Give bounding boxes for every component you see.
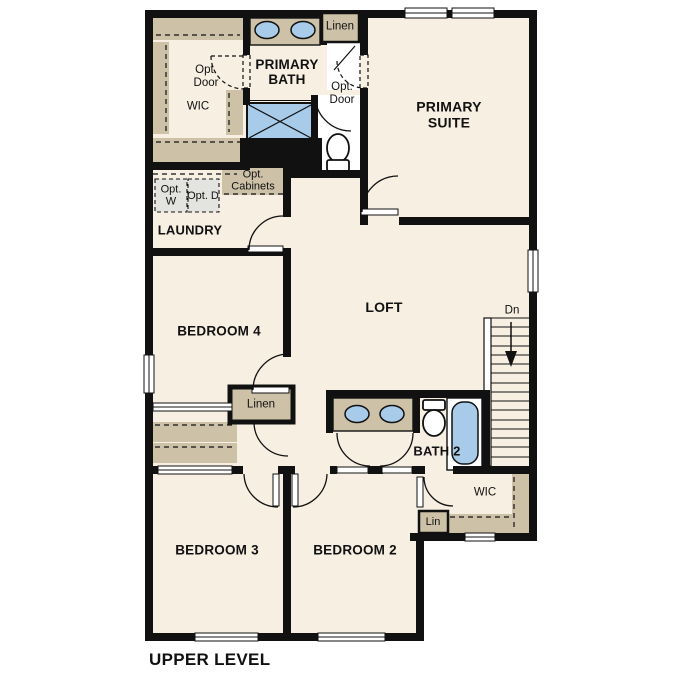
label-wic-lower: WIC xyxy=(474,487,496,500)
sink-icon xyxy=(255,22,279,39)
door-leaf xyxy=(337,467,368,473)
door-leaf xyxy=(417,477,423,507)
room-label-bedroom2: BEDROOM 2 xyxy=(285,542,425,557)
toilet-tank xyxy=(423,400,445,410)
toilet-tank xyxy=(327,160,349,171)
label-opt-cabinets: Opt. Cabinets xyxy=(220,169,286,194)
plan-title: UPPER LEVEL xyxy=(149,650,270,670)
room-label-laundry: LAUNDRY xyxy=(135,224,245,239)
door-leaf xyxy=(252,387,289,393)
wic-top-shelf xyxy=(153,18,243,40)
room-label-bedroom3: BEDROOM 3 xyxy=(147,542,287,557)
label-opt-door-left: Opt. Door xyxy=(183,64,229,90)
sink-icon xyxy=(291,22,315,39)
label-opt-dryer: Opt. D xyxy=(186,190,220,202)
toilet-icon xyxy=(423,410,445,436)
label-stairs-down: Dn xyxy=(505,305,520,318)
sink-icon xyxy=(380,406,404,423)
room-label-loft: LOFT xyxy=(344,300,424,316)
room-label-bath2: BATH 2 xyxy=(411,445,463,460)
label-linen-lower: Lin xyxy=(426,516,441,528)
label-wic-upper: WIC xyxy=(187,101,209,114)
wic-left-shelf xyxy=(153,42,169,134)
door-leaf xyxy=(292,474,298,506)
room-label-primary-suite: PRIMARY SUITE xyxy=(399,99,499,130)
door-leaf xyxy=(382,467,412,473)
label-opt-door-right: Opt. Door xyxy=(319,81,365,107)
room-label-bedroom4: BEDROOM 4 xyxy=(154,323,284,338)
door-leaf xyxy=(248,246,283,252)
door-leaf xyxy=(361,209,398,215)
label-linen-hall: Linen xyxy=(247,399,275,412)
label-opt-washer: Opt. W xyxy=(154,184,188,209)
toilet-icon xyxy=(327,134,349,162)
sink-icon xyxy=(345,406,369,423)
floor-plan: PRIMARY BATH PRIMARY SUITE WIC Opt. Door… xyxy=(0,0,687,687)
closet-shelf-bed3 xyxy=(153,443,237,463)
door-leaf xyxy=(273,474,279,506)
label-linen-upper: Linen xyxy=(326,21,354,34)
